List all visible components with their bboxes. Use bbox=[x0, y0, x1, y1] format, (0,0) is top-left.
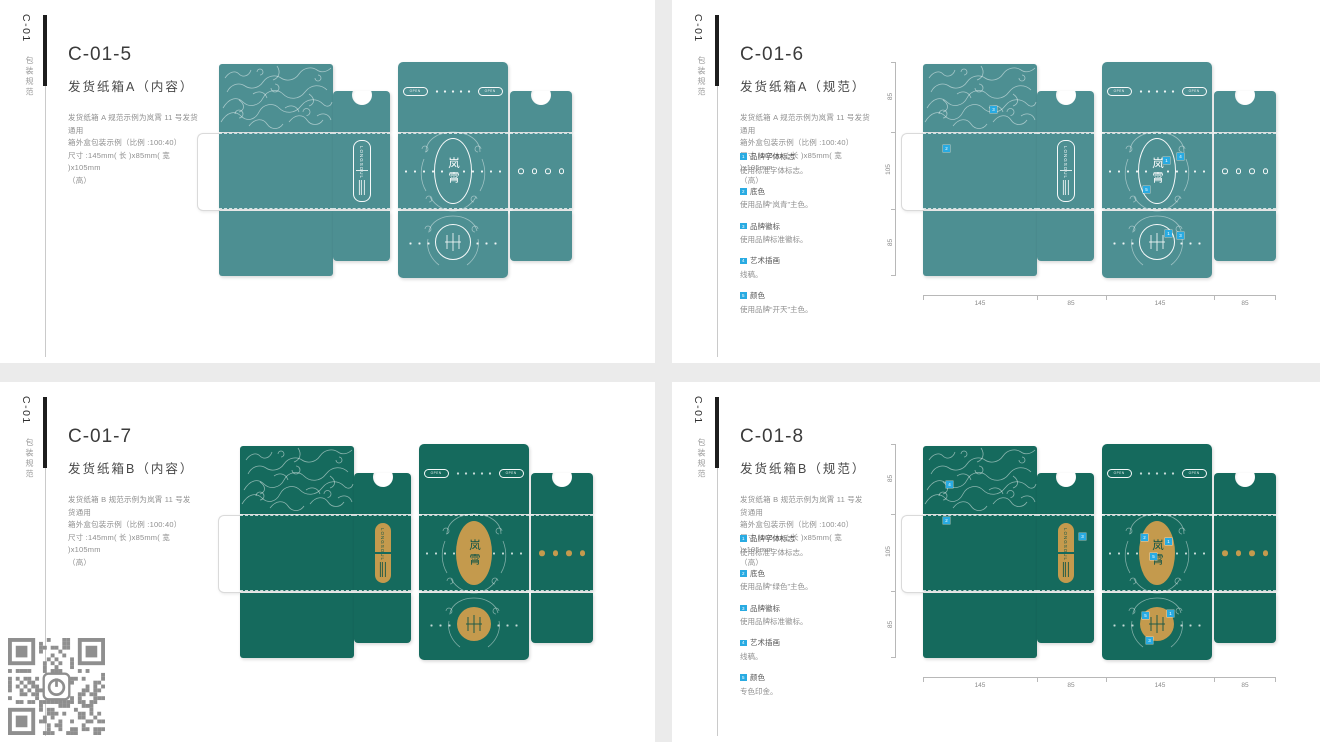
note-desc: 使用品牌“岚青”主色。 bbox=[740, 199, 872, 210]
note-index-badge: 2 bbox=[740, 570, 747, 577]
cloud-line-art bbox=[219, 64, 333, 132]
qr-code bbox=[8, 638, 105, 735]
glue-flap bbox=[901, 515, 924, 593]
section-category: 包装规范 bbox=[24, 56, 35, 98]
width-dimension-bracket: 145 85 145 85 bbox=[923, 677, 1276, 691]
care-icon bbox=[532, 168, 538, 174]
tear-strip: OPEN OPEN bbox=[1102, 468, 1212, 478]
care-icon bbox=[518, 168, 524, 174]
flap-side-top-1 bbox=[1037, 91, 1094, 132]
brand-emblem-text: 岚霄 bbox=[466, 539, 482, 568]
note-label: 底色 bbox=[750, 568, 765, 579]
thumb-notch bbox=[352, 91, 372, 105]
flap-side-top-1 bbox=[1037, 473, 1094, 514]
callout-marker: 5 bbox=[1142, 612, 1149, 619]
spec-notes: 1品牌字体标志 使用标准字体标志。 2底色 使用品牌“岚青”主色。 3品牌徽标 … bbox=[740, 151, 872, 325]
panel-side-1: LONGSOUL bbox=[354, 515, 411, 591]
callout-marker: 4 bbox=[1177, 153, 1184, 160]
section-code: C-01 bbox=[20, 396, 32, 425]
flap-bottom-large-1 bbox=[240, 593, 354, 658]
thumb-notch bbox=[1235, 473, 1255, 487]
box-dieline: LONGSOUL OPEN OPEN bbox=[901, 444, 1281, 692]
panel-front-blank bbox=[923, 133, 1037, 209]
spec-note: 2底色 使用品牌“绿色”主色。 bbox=[740, 568, 872, 593]
care-icon bbox=[553, 550, 559, 556]
sheet-c-01-5: C-01 包装规范 C-01-5 发货纸箱A（内容） 发货纸箱 A 规范示例为岚… bbox=[0, 0, 655, 363]
note-index-badge: 2 bbox=[740, 188, 747, 195]
flap-illustration bbox=[923, 64, 1037, 132]
flap-illustration bbox=[240, 446, 354, 514]
open-tab-left: OPEN bbox=[1107, 87, 1132, 96]
width-dim-label: 85 bbox=[1067, 682, 1074, 689]
note-label: 品牌字体标志 bbox=[750, 533, 795, 544]
thumb-notch bbox=[1056, 473, 1076, 487]
page-title: C-01-5 bbox=[68, 44, 132, 66]
open-tab-right: OPEN bbox=[478, 87, 503, 96]
seal-monogram-glyph bbox=[457, 607, 491, 641]
tear-strip: OPEN OPEN bbox=[398, 86, 508, 96]
flap-illustration bbox=[923, 446, 1037, 514]
callout-marker: 2 bbox=[943, 517, 950, 524]
care-icon bbox=[539, 550, 545, 556]
callout-marker: 3 bbox=[1146, 637, 1153, 644]
brand-emblem-text: 岚霄 bbox=[445, 157, 461, 186]
width-dimension-bracket: 145 85 145 85 bbox=[923, 295, 1276, 309]
flap-side-top-2 bbox=[510, 91, 572, 132]
callout-marker: 3 bbox=[990, 106, 997, 113]
care-icon bbox=[1236, 168, 1242, 174]
callout-marker: 3 bbox=[1079, 533, 1086, 540]
thumb-notch bbox=[531, 91, 551, 105]
care-icons-row bbox=[1222, 550, 1268, 556]
flap-top-opening: OPEN OPEN bbox=[398, 62, 508, 132]
note-desc: 使用品牌“绿色”主色。 bbox=[740, 581, 872, 592]
care-icon bbox=[1263, 550, 1269, 556]
panel-emblem: 岚霄 bbox=[419, 515, 529, 591]
flap-bottom-seal bbox=[1102, 211, 1212, 278]
width-dim-label: 85 bbox=[1241, 682, 1248, 689]
brand-badge-text: LONGSOUL bbox=[1063, 146, 1068, 179]
brand-badge-text: LONGSOUL bbox=[380, 528, 385, 561]
flap-top-opening: OPEN OPEN bbox=[1102, 62, 1212, 132]
note-index-badge: 4 bbox=[740, 640, 747, 647]
care-icon bbox=[1236, 550, 1242, 556]
callout-marker: 1 bbox=[1163, 157, 1170, 164]
seal-monogram bbox=[457, 607, 491, 641]
panel-emblem: 岚霄 bbox=[398, 133, 508, 209]
care-icon bbox=[1263, 168, 1269, 174]
callout-marker: 5 bbox=[1150, 553, 1157, 560]
brand-badge-pill: LONGSOUL bbox=[1057, 140, 1075, 202]
note-index-badge: 4 bbox=[740, 258, 747, 265]
glue-flap bbox=[218, 515, 241, 593]
cloud-line-art bbox=[923, 64, 1037, 132]
page-subtitle: 发货纸箱A（规范） bbox=[740, 76, 866, 95]
panel-side-1: LONGSOUL bbox=[1037, 515, 1094, 591]
panel-emblem: 岚霄 bbox=[1102, 133, 1212, 209]
flap-bottom-small-1 bbox=[354, 593, 411, 643]
brand-badge-pill: LONGSOUL bbox=[1058, 523, 1074, 583]
note-index-badge: 1 bbox=[740, 153, 747, 160]
flap-bottom-seal bbox=[398, 211, 508, 278]
page-subtitle: 发货纸箱B（内容） bbox=[68, 458, 194, 477]
brand-badge-text: LONGSOUL bbox=[1063, 528, 1068, 561]
care-icon bbox=[559, 168, 565, 174]
sidebar-rule bbox=[717, 468, 718, 736]
flap-bottom-small-2 bbox=[1214, 211, 1276, 261]
note-label: 颜色 bbox=[750, 290, 765, 301]
flap-top-opening: OPEN OPEN bbox=[419, 444, 529, 514]
sidebar-bar bbox=[43, 397, 47, 468]
spec-note: 4艺术插画 线稿。 bbox=[740, 637, 872, 662]
spec-note: 5颜色 使用品牌“开天”主色。 bbox=[740, 290, 872, 315]
sidebar-bar bbox=[715, 15, 719, 86]
thumb-notch bbox=[373, 473, 393, 487]
care-icon bbox=[580, 550, 586, 556]
flap-bottom-large-1 bbox=[923, 211, 1037, 276]
note-desc: 使用标准字体标志。 bbox=[740, 547, 872, 558]
badge-fine-print bbox=[379, 562, 385, 577]
note-desc: 专色印金。 bbox=[740, 686, 872, 697]
panel-emblem: 岚霄 bbox=[1102, 515, 1212, 591]
care-icon bbox=[1249, 168, 1255, 174]
note-desc: 使用品牌标准徽标。 bbox=[740, 616, 872, 627]
width-dim-label: 145 bbox=[975, 682, 986, 689]
box-dieline: LONGSOUL OPEN OPEN bbox=[901, 62, 1281, 310]
note-desc: 使用品牌“开天”主色。 bbox=[740, 304, 872, 315]
open-tab-left: OPEN bbox=[1107, 469, 1132, 478]
glue-flap bbox=[197, 133, 220, 211]
thumb-notch bbox=[552, 473, 572, 487]
flap-side-top-2 bbox=[1214, 91, 1276, 132]
flap-illustration bbox=[219, 64, 333, 132]
page-subtitle: 发货纸箱A（内容） bbox=[68, 76, 194, 95]
sidebar-rule bbox=[45, 86, 46, 357]
thumb-notch bbox=[1056, 91, 1076, 105]
height-dim-label: 85 bbox=[887, 93, 894, 100]
page-title: C-01-7 bbox=[68, 426, 132, 448]
width-dim-label: 145 bbox=[1155, 300, 1166, 307]
glue-flap bbox=[901, 133, 924, 211]
box-dieline: LONGSOUL OPEN OPEN bbox=[197, 62, 577, 310]
flap-side-top-1 bbox=[333, 91, 390, 132]
brand-badge-pill: LONGSOUL bbox=[375, 523, 391, 583]
spec-note: 1品牌字体标志 使用标准字体标志。 bbox=[740, 151, 872, 176]
panel-front-blank bbox=[219, 133, 333, 209]
flap-bottom-small-2 bbox=[1214, 593, 1276, 643]
perforation-dots bbox=[1136, 90, 1178, 93]
brand-emblem-oval: 岚霄 bbox=[456, 521, 492, 585]
seal-monogram bbox=[435, 224, 471, 260]
panel-front-blank bbox=[923, 515, 1037, 591]
brand-badge-pill: LONGSOUL bbox=[353, 140, 371, 202]
thumb-notch bbox=[1235, 91, 1255, 105]
care-icon bbox=[566, 550, 572, 556]
care-icon bbox=[1222, 550, 1228, 556]
section-category: 包装规范 bbox=[696, 438, 707, 480]
note-label: 底色 bbox=[750, 186, 765, 197]
height-dim-label: 85 bbox=[887, 239, 894, 246]
section-code: C-01 bbox=[20, 14, 32, 43]
sheet-c-01-6: C-01 包装规范 C-01-6 发货纸箱A（规范） 发货纸箱 A 规范示例为岚… bbox=[672, 0, 1320, 363]
flap-bottom-seal bbox=[1102, 593, 1212, 660]
note-index-badge: 5 bbox=[740, 292, 747, 299]
sheet-c-01-8: C-01 包装规范 C-01-8 发货纸箱B（规范） 发货纸箱 B 规范示例为岚… bbox=[672, 382, 1320, 742]
perforation-dots bbox=[453, 472, 495, 475]
open-tab-left: OPEN bbox=[403, 87, 428, 96]
panel-front-blank bbox=[240, 515, 354, 591]
panel-side-2 bbox=[1214, 133, 1276, 209]
spec-note: 3品牌徽标 使用品牌标准徽标。 bbox=[740, 603, 872, 628]
flap-bottom-small-1 bbox=[1037, 593, 1094, 643]
callout-marker: 2 bbox=[1141, 534, 1148, 541]
page-title: C-01-6 bbox=[740, 44, 804, 66]
callout-marker: 1 bbox=[1165, 538, 1172, 545]
perforation-dots bbox=[432, 90, 474, 93]
section-code: C-01 bbox=[692, 396, 704, 425]
sidebar-rule bbox=[717, 86, 718, 357]
callout-marker: 5 bbox=[1143, 186, 1150, 193]
badge-fine-print bbox=[1062, 562, 1068, 577]
note-label: 品牌字体标志 bbox=[750, 151, 795, 162]
flap-top-opening: OPEN OPEN bbox=[1102, 444, 1212, 514]
note-label: 品牌徽标 bbox=[750, 603, 780, 614]
tear-strip: OPEN OPEN bbox=[1102, 86, 1212, 96]
open-tab-left: OPEN bbox=[424, 469, 449, 478]
badge-fine-print bbox=[358, 180, 364, 195]
care-icon bbox=[545, 168, 551, 174]
panel-side-2 bbox=[531, 515, 593, 591]
height-dim-label: 85 bbox=[887, 621, 894, 628]
note-label: 艺术插画 bbox=[750, 637, 780, 648]
page-title: C-01-8 bbox=[740, 426, 804, 448]
perforation-dots bbox=[1136, 472, 1178, 475]
flap-side-top-1 bbox=[354, 473, 411, 514]
brand-emblem-oval: 岚霄 bbox=[1139, 521, 1175, 585]
spec-note: 3品牌徽标 使用品牌标准徽标。 bbox=[740, 221, 872, 246]
open-tab-right: OPEN bbox=[1182, 87, 1207, 96]
flap-bottom-small-2 bbox=[531, 593, 593, 643]
brand-badge-text: LONGSOUL bbox=[359, 146, 364, 179]
badge-fine-print bbox=[1062, 180, 1068, 195]
open-tab-right: OPEN bbox=[499, 469, 524, 478]
height-dim-label: 85 bbox=[887, 475, 894, 482]
callout-marker: 4 bbox=[946, 481, 953, 488]
height-dimension-bracket: 85 105 85 bbox=[881, 444, 896, 658]
width-dim-label: 85 bbox=[1241, 300, 1248, 307]
note-desc: 线稿。 bbox=[740, 651, 872, 662]
height-dim-label: 105 bbox=[885, 546, 892, 557]
flap-bottom-seal bbox=[419, 593, 529, 660]
cloud-line-art bbox=[240, 446, 354, 514]
cloud-line-art bbox=[923, 446, 1037, 514]
brand-emblem-oval: 岚霄 bbox=[434, 138, 472, 204]
flap-side-top-2 bbox=[531, 473, 593, 514]
note-desc: 线稿。 bbox=[740, 269, 872, 280]
width-dim-label: 145 bbox=[1155, 682, 1166, 689]
spec-note: 4艺术插画 线稿。 bbox=[740, 255, 872, 280]
care-icon bbox=[1249, 550, 1255, 556]
tear-strip: OPEN OPEN bbox=[419, 468, 529, 478]
note-index-badge: 5 bbox=[740, 674, 747, 681]
section-category: 包装规范 bbox=[24, 438, 35, 480]
callout-marker: 3 bbox=[1177, 232, 1184, 239]
care-icons-row bbox=[539, 550, 585, 556]
height-dimension-bracket: 85 105 85 bbox=[881, 62, 896, 276]
note-label: 艺术插画 bbox=[750, 255, 780, 266]
care-icons-row bbox=[518, 168, 564, 174]
panel-side-1: LONGSOUL bbox=[333, 133, 390, 209]
panel-side-2 bbox=[510, 133, 572, 209]
flap-bottom-small-2 bbox=[510, 211, 572, 261]
spec-description: 发货纸箱 B 规范示例为岚霄 11 号发货通用 箱外盒包装示例（比例 :100:… bbox=[68, 494, 198, 570]
callout-marker: 2 bbox=[943, 145, 950, 152]
note-index-badge: 3 bbox=[740, 605, 747, 612]
note-desc: 使用标准字体标志。 bbox=[740, 165, 872, 176]
flap-bottom-small-1 bbox=[1037, 211, 1094, 261]
spec-notes: 1品牌字体标志 使用标准字体标志。 2底色 使用品牌“绿色”主色。 3品牌徽标 … bbox=[740, 533, 872, 707]
flap-side-top-2 bbox=[1214, 473, 1276, 514]
sidebar-bar bbox=[715, 397, 719, 468]
section-category: 包装规范 bbox=[696, 56, 707, 98]
flap-bottom-large-1 bbox=[923, 593, 1037, 658]
sidebar-bar bbox=[43, 15, 47, 86]
note-index-badge: 1 bbox=[740, 535, 747, 542]
callout-marker: 1 bbox=[1165, 230, 1172, 237]
flap-bottom-small-1 bbox=[333, 211, 390, 261]
flap-bottom-large-1 bbox=[219, 211, 333, 276]
note-label: 颜色 bbox=[750, 672, 765, 683]
callout-marker: 1 bbox=[1167, 610, 1174, 617]
care-icon bbox=[1222, 168, 1228, 174]
width-dim-label: 145 bbox=[975, 300, 986, 307]
spec-note: 2底色 使用品牌“岚青”主色。 bbox=[740, 186, 872, 211]
spec-note: 5颜色 专色印金。 bbox=[740, 672, 872, 697]
height-dim-label: 105 bbox=[885, 164, 892, 175]
width-dim-label: 85 bbox=[1067, 300, 1074, 307]
note-label: 品牌徽标 bbox=[750, 221, 780, 232]
note-index-badge: 3 bbox=[740, 223, 747, 230]
care-icons-row bbox=[1222, 168, 1268, 174]
box-dieline: LONGSOUL OPEN OPEN bbox=[218, 444, 598, 692]
brand-emblem-oval: 岚霄 bbox=[1138, 138, 1176, 204]
page-subtitle: 发货纸箱B（规范） bbox=[740, 458, 866, 477]
section-code: C-01 bbox=[692, 14, 704, 43]
open-tab-right: OPEN bbox=[1182, 469, 1207, 478]
spec-note: 1品牌字体标志 使用标准字体标志。 bbox=[740, 533, 872, 558]
note-desc: 使用品牌标准徽标。 bbox=[740, 234, 872, 245]
seal-monogram-glyph bbox=[436, 225, 470, 259]
spec-description: 发货纸箱 A 规范示例为岚霄 11 号发货通用 箱外盒包装示例（比例 :100:… bbox=[68, 112, 198, 188]
panel-side-1: LONGSOUL bbox=[1037, 133, 1094, 209]
panel-side-2 bbox=[1214, 515, 1276, 591]
